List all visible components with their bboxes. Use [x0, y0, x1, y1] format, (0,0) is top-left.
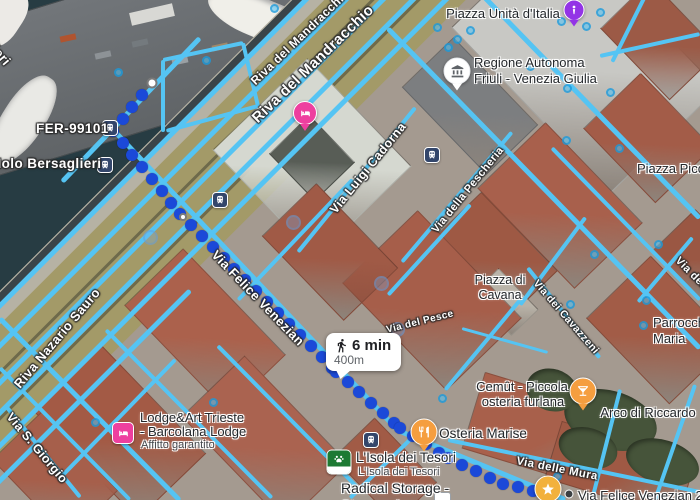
pet-store-logo-isola-tesori[interactable] [327, 450, 352, 475]
route-dot [377, 407, 389, 419]
tram-icon [215, 195, 225, 205]
hotel-pin-mandracchio[interactable] [293, 101, 317, 125]
poi-label-cavana-2[interactable]: Cavana [478, 288, 521, 302]
poi-label-regione-1[interactable]: Regione Autonoma [474, 55, 585, 70]
transit-station-icon-venezian[interactable] [212, 192, 228, 208]
poi-dot-venezian-21[interactable] [565, 490, 574, 499]
photo-sphere-dot[interactable] [91, 418, 100, 427]
route-dot [497, 478, 509, 490]
poi-label-isola-sub: L'Isola dei Tesori [358, 466, 439, 478]
route-info-bubble[interactable]: 6 min 400m [326, 333, 401, 371]
poi-label-parrocchia-2[interactable]: Maria [653, 331, 686, 346]
bed-icon [117, 427, 130, 440]
poi-label-lodge-1[interactable]: Lodge&Art Trieste [140, 410, 244, 425]
poi-label-fer-99101[interactable]: FER-99101 [36, 121, 109, 136]
photo-sphere-dot[interactable] [433, 23, 442, 32]
poi-label-isola-title[interactable]: L'Isola dei Tesori [356, 450, 456, 465]
classical-building-icon [450, 64, 464, 78]
route-duration: 6 min [352, 337, 391, 354]
fork-knife-icon [418, 426, 431, 439]
poi-label-lodge-3: Affitto garantito [141, 439, 215, 451]
walking-person-icon [334, 338, 349, 353]
photo-sphere-dot[interactable] [270, 4, 279, 13]
photo-sphere-dot[interactable] [606, 88, 615, 97]
poi-label-piazza-unita[interactable]: Piazza Unità d'Italia [446, 6, 560, 21]
poi-label-regione-2[interactable]: Friuli - Venezia Giulia [474, 71, 597, 86]
route-waypoint-dot [179, 213, 187, 221]
photo-sphere-dot[interactable] [466, 26, 475, 35]
attraction-pin-piazza-unita[interactable] [564, 0, 585, 21]
photo-sphere-dot[interactable] [444, 43, 453, 52]
poi-label-radical-storage[interactable]: Radical Storage - [341, 480, 449, 496]
route-dot [512, 481, 524, 493]
route-dot [117, 113, 129, 125]
poi-label-osteria-marise[interactable]: Osteria Marise [439, 426, 527, 441]
poi-label-arco-riccardo[interactable]: Arco di Riccardo [600, 405, 695, 420]
train-icon [100, 160, 110, 170]
photo-sphere-dot[interactable] [639, 321, 648, 330]
poi-label-parrocchia-1[interactable]: Parrocchia [653, 315, 700, 330]
photo-sphere-dot[interactable] [562, 136, 571, 145]
road-line [161, 60, 165, 132]
photo-sphere-dot[interactable] [654, 240, 663, 249]
government-pin-regione[interactable] [444, 58, 471, 85]
route-start-dot [147, 78, 158, 89]
route-dot [156, 185, 168, 197]
photo-sphere-dot[interactable] [582, 22, 591, 31]
photo-sphere-dot[interactable] [202, 56, 211, 65]
poi-label-molo-bersaglieri[interactable]: Molo Bersaglieri [0, 156, 101, 171]
route-dot [196, 230, 208, 242]
route-distance: 400m [334, 353, 391, 367]
route-dot [394, 422, 406, 434]
transit-station-icon-isola[interactable] [363, 432, 379, 448]
photo-sphere-dot[interactable] [566, 300, 575, 309]
cocktail-icon [577, 385, 590, 398]
photo-sphere-dot-faded[interactable] [374, 276, 389, 291]
poi-label-lodge-2[interactable]: - Barcolana Lodge [140, 424, 246, 439]
tram-icon [427, 150, 437, 160]
poi-label-cavana-1[interactable]: Piazza di [475, 273, 526, 287]
map-canvas[interactable]: Riva del Mandracchio Riva del Mandracchi… [0, 0, 700, 500]
poi-label-piazza-piccola[interactable]: Piazza Piccola [637, 161, 700, 176]
photo-sphere-dot-faded[interactable] [286, 215, 301, 230]
restaurant-pin-osteria-marise[interactable] [411, 419, 438, 446]
route-dot [484, 472, 496, 484]
photo-sphere-dot-faded[interactable] [143, 230, 158, 245]
route-dot [365, 397, 377, 409]
photo-sphere-dot[interactable] [615, 144, 624, 153]
star-icon [541, 482, 556, 497]
transit-station-icon-cadorna[interactable] [424, 147, 440, 163]
starred-place-pin-venezian-21[interactable] [535, 476, 562, 500]
paw-icon [333, 453, 346, 466]
route-dot [470, 465, 482, 477]
photo-sphere-dot[interactable] [453, 35, 462, 44]
poi-label-cemut-1[interactable]: Cemût - Piccola [476, 379, 568, 394]
route-dot [117, 137, 129, 149]
photo-sphere-dot[interactable] [114, 68, 123, 77]
photo-sphere-dot[interactable] [590, 250, 599, 259]
poi-label-cemut-2[interactable]: osteria furlana [482, 394, 564, 409]
photo-sphere-dot[interactable] [642, 296, 651, 305]
bed-icon [299, 107, 312, 120]
logo-band [328, 467, 351, 474]
route-dot [185, 219, 197, 231]
bar-pin-cemut[interactable] [570, 378, 597, 405]
hotel-pin-lodge-art[interactable] [112, 422, 134, 444]
tram-icon [366, 435, 376, 445]
route-dot [456, 459, 468, 471]
photo-sphere-dot[interactable] [596, 8, 605, 17]
poi-label-venezian-21[interactable]: Via Felice Venezian 21 [578, 488, 700, 500]
photo-sphere-dot[interactable] [438, 394, 447, 403]
photo-sphere-dot[interactable] [209, 398, 218, 407]
route-dot [305, 340, 317, 352]
monument-icon [569, 5, 580, 16]
route-dot [342, 376, 354, 388]
